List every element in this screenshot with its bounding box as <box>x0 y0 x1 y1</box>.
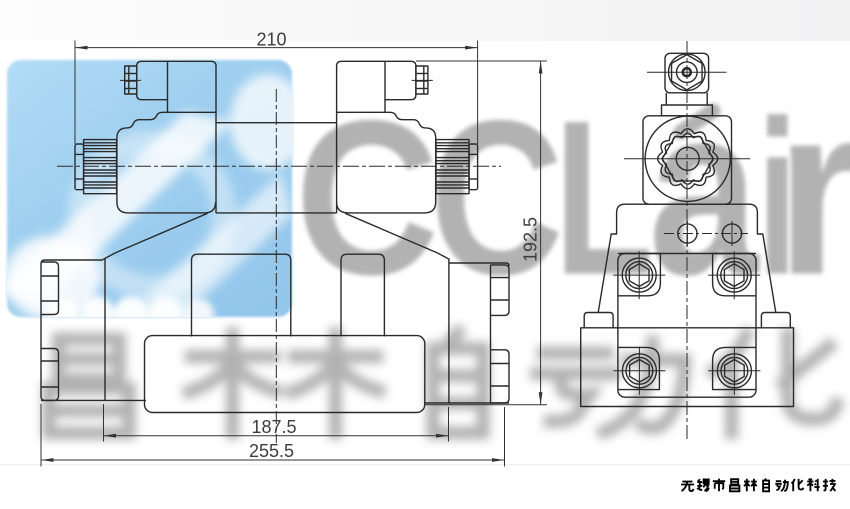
svg-text:255.5: 255.5 <box>249 441 294 461</box>
svg-text:187.5: 187.5 <box>251 417 296 437</box>
svg-text:192.5: 192.5 <box>521 217 541 262</box>
svg-text:210: 210 <box>256 30 286 50</box>
svg-text:C: C <box>295 75 439 321</box>
svg-text:r: r <box>776 55 850 326</box>
